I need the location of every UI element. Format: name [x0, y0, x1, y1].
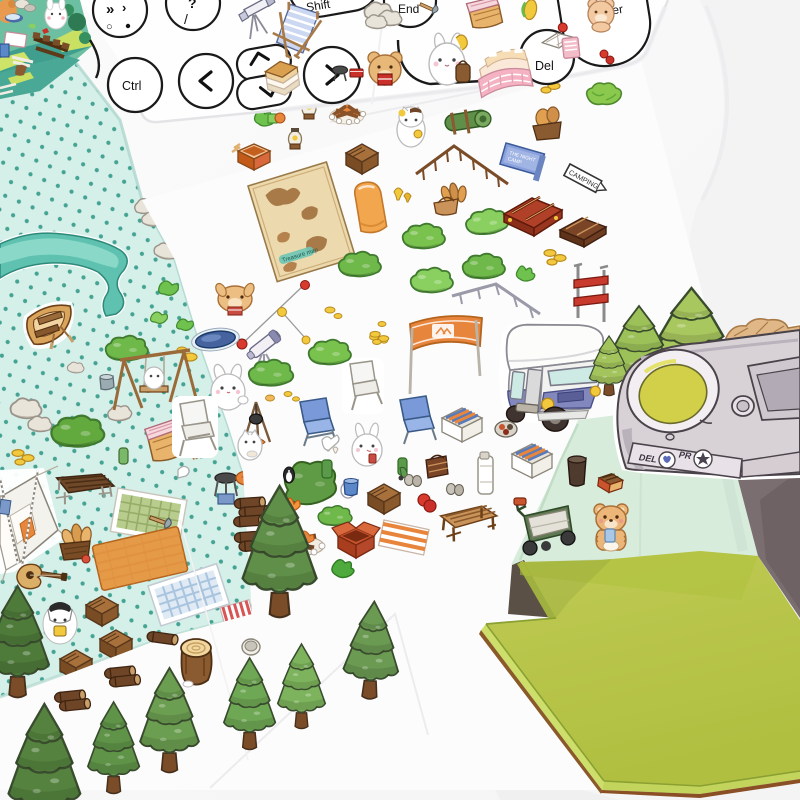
svg-text:○: ○ [106, 21, 113, 33]
svg-text:PR: PR [678, 449, 692, 461]
svg-text:Del: Del [535, 59, 554, 73]
svg-text:›: › [122, 0, 126, 15]
svg-text:?: ? [188, 0, 197, 11]
svg-text:»: » [106, 1, 114, 18]
svg-text:/: / [184, 11, 188, 27]
svg-text:Ctrl: Ctrl [122, 79, 141, 93]
svg-text:End: End [398, 2, 419, 16]
